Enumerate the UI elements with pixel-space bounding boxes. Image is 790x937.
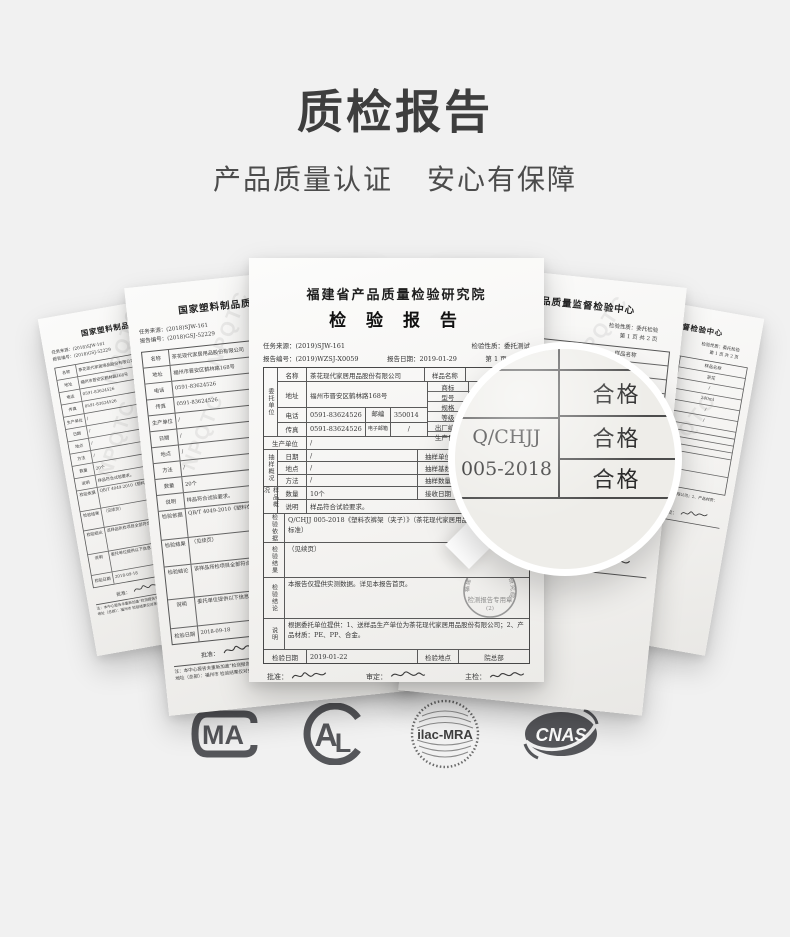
svg-text:L: L [335, 728, 352, 758]
svg-text:检测报告专用章: 检测报告专用章 [468, 595, 513, 604]
cma-logo: MA [190, 708, 262, 760]
report-title: 检 验 报 告 [263, 306, 530, 331]
svg-text:ilac-MRA: ilac-MRA [417, 727, 473, 742]
magnifier-circle: Q/CHJJ 005-2018 合格 合格 合格 [448, 342, 682, 576]
cal-logo: A L [302, 703, 368, 765]
svg-text:MA: MA [202, 720, 244, 750]
signature-chief [488, 669, 526, 682]
signature [679, 507, 710, 522]
group-conclusion: 检验结论 [264, 578, 285, 618]
quality-report-section: 质检报告 产品质量认证安心有保障 国家塑料制品质量监督检验中心 任务来源：(20… [0, 0, 790, 937]
group-result: 检验结果 [264, 543, 285, 577]
ilac-mra-logo: ilac-MRA [408, 698, 482, 770]
signature-approve [290, 669, 328, 682]
report-no: 报告编号：(2019)WZSJ-X0059 [263, 353, 359, 363]
result-pass-2: 合格 [558, 416, 675, 458]
group-sample: 样品概况 [264, 487, 278, 513]
group-client: 委托单位 [264, 368, 278, 436]
group-note: 说明 [264, 619, 285, 649]
signature-review [389, 669, 427, 682]
task-source: 任务来源：(2019)SJW-161 [263, 340, 345, 350]
standard-number: Q/CHJJ 005-2018 [455, 421, 558, 486]
inspection-stamp: 福建省产品质量检验研究院 检测报告专用章 (2) [461, 578, 519, 618]
note-text: 根据委托单位提供：1、送样品生产单位为茶花现代家居用品股份有限公司；2、产品材质… [285, 619, 529, 649]
svg-text:CNAS: CNAS [535, 725, 586, 745]
signature-row: 批准： 审定： 主检： [263, 669, 530, 682]
certification-logos: MA A L ilac-MRA CNAS [0, 698, 790, 770]
svg-text:(2): (2) [486, 605, 494, 612]
group-sampling: 抽样概况 [264, 450, 278, 486]
result-pass-3: 合格 [558, 459, 675, 497]
inspection-nature: 检验性质：委托测试 [472, 340, 531, 350]
report-date: 报告日期：2019-01-29 [387, 353, 457, 363]
conclusion-text: 本报告仅提供实测数据。详见本报告首页。 [288, 580, 412, 590]
reports-fan: 国家塑料制品质量监督检验中心 任务来源：(2018)SJW-161 报告编号：(… [0, 0, 790, 937]
group-basis: 检验依据 [264, 514, 285, 542]
cnas-logo: CNAS [522, 707, 600, 761]
result-pass-1: 合格 [558, 370, 675, 415]
institute-name: 福建省产品质量检验研究院 [263, 284, 530, 303]
magnifier-content: Q/CHJJ 005-2018 合格 合格 合格 [455, 349, 675, 569]
